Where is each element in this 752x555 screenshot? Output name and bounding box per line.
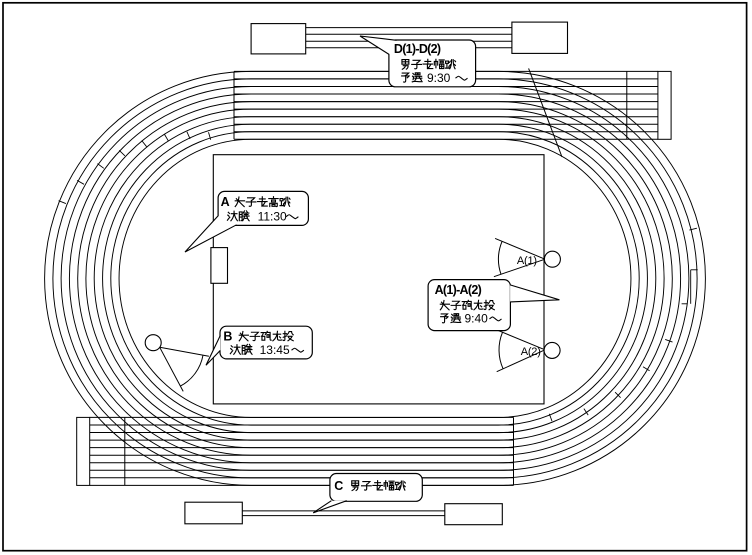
svg-text:13:45: 13:45 (260, 343, 290, 357)
svg-text:C: C (334, 479, 343, 493)
svg-text:A: A (221, 195, 230, 209)
svg-text:B: B (223, 329, 232, 343)
svg-text:D(1)-D(2): D(1)-D(2) (394, 42, 441, 56)
svg-text:9:40: 9:40 (465, 312, 489, 326)
svg-text:A(1): A(1) (517, 255, 537, 267)
svg-text:A(2): A(2) (521, 346, 541, 358)
svg-text:11:30: 11:30 (258, 209, 287, 223)
svg-text:A(1)-A(2): A(1)-A(2) (435, 283, 482, 297)
svg-text:9:30: 9:30 (427, 71, 451, 85)
